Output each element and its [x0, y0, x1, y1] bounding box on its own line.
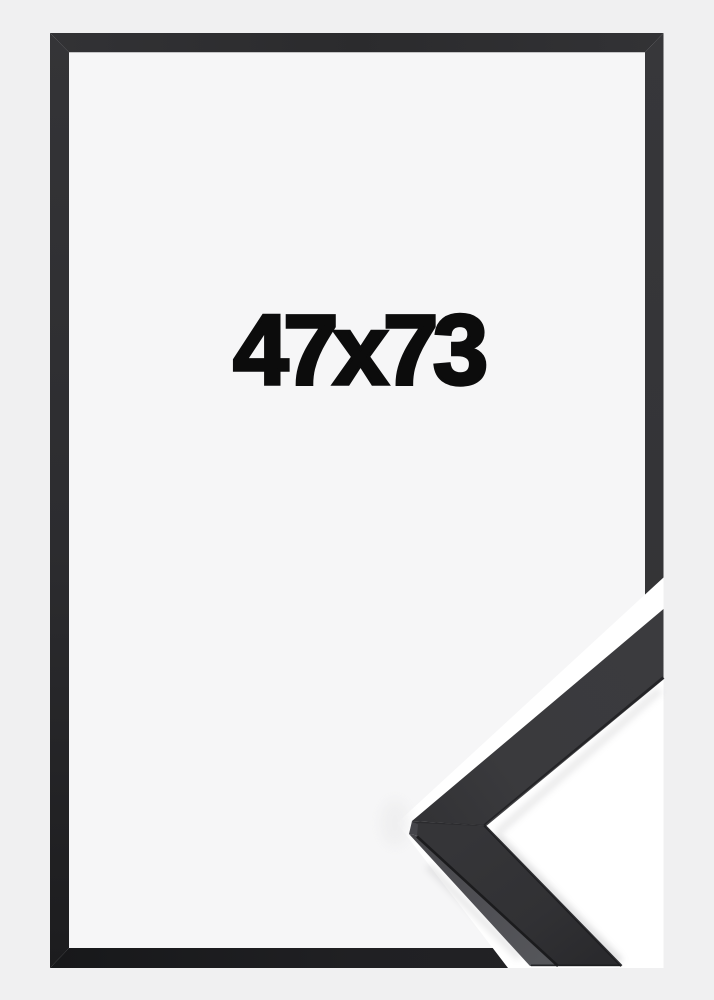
svg-text:47x73: 47x73 [233, 295, 485, 406]
